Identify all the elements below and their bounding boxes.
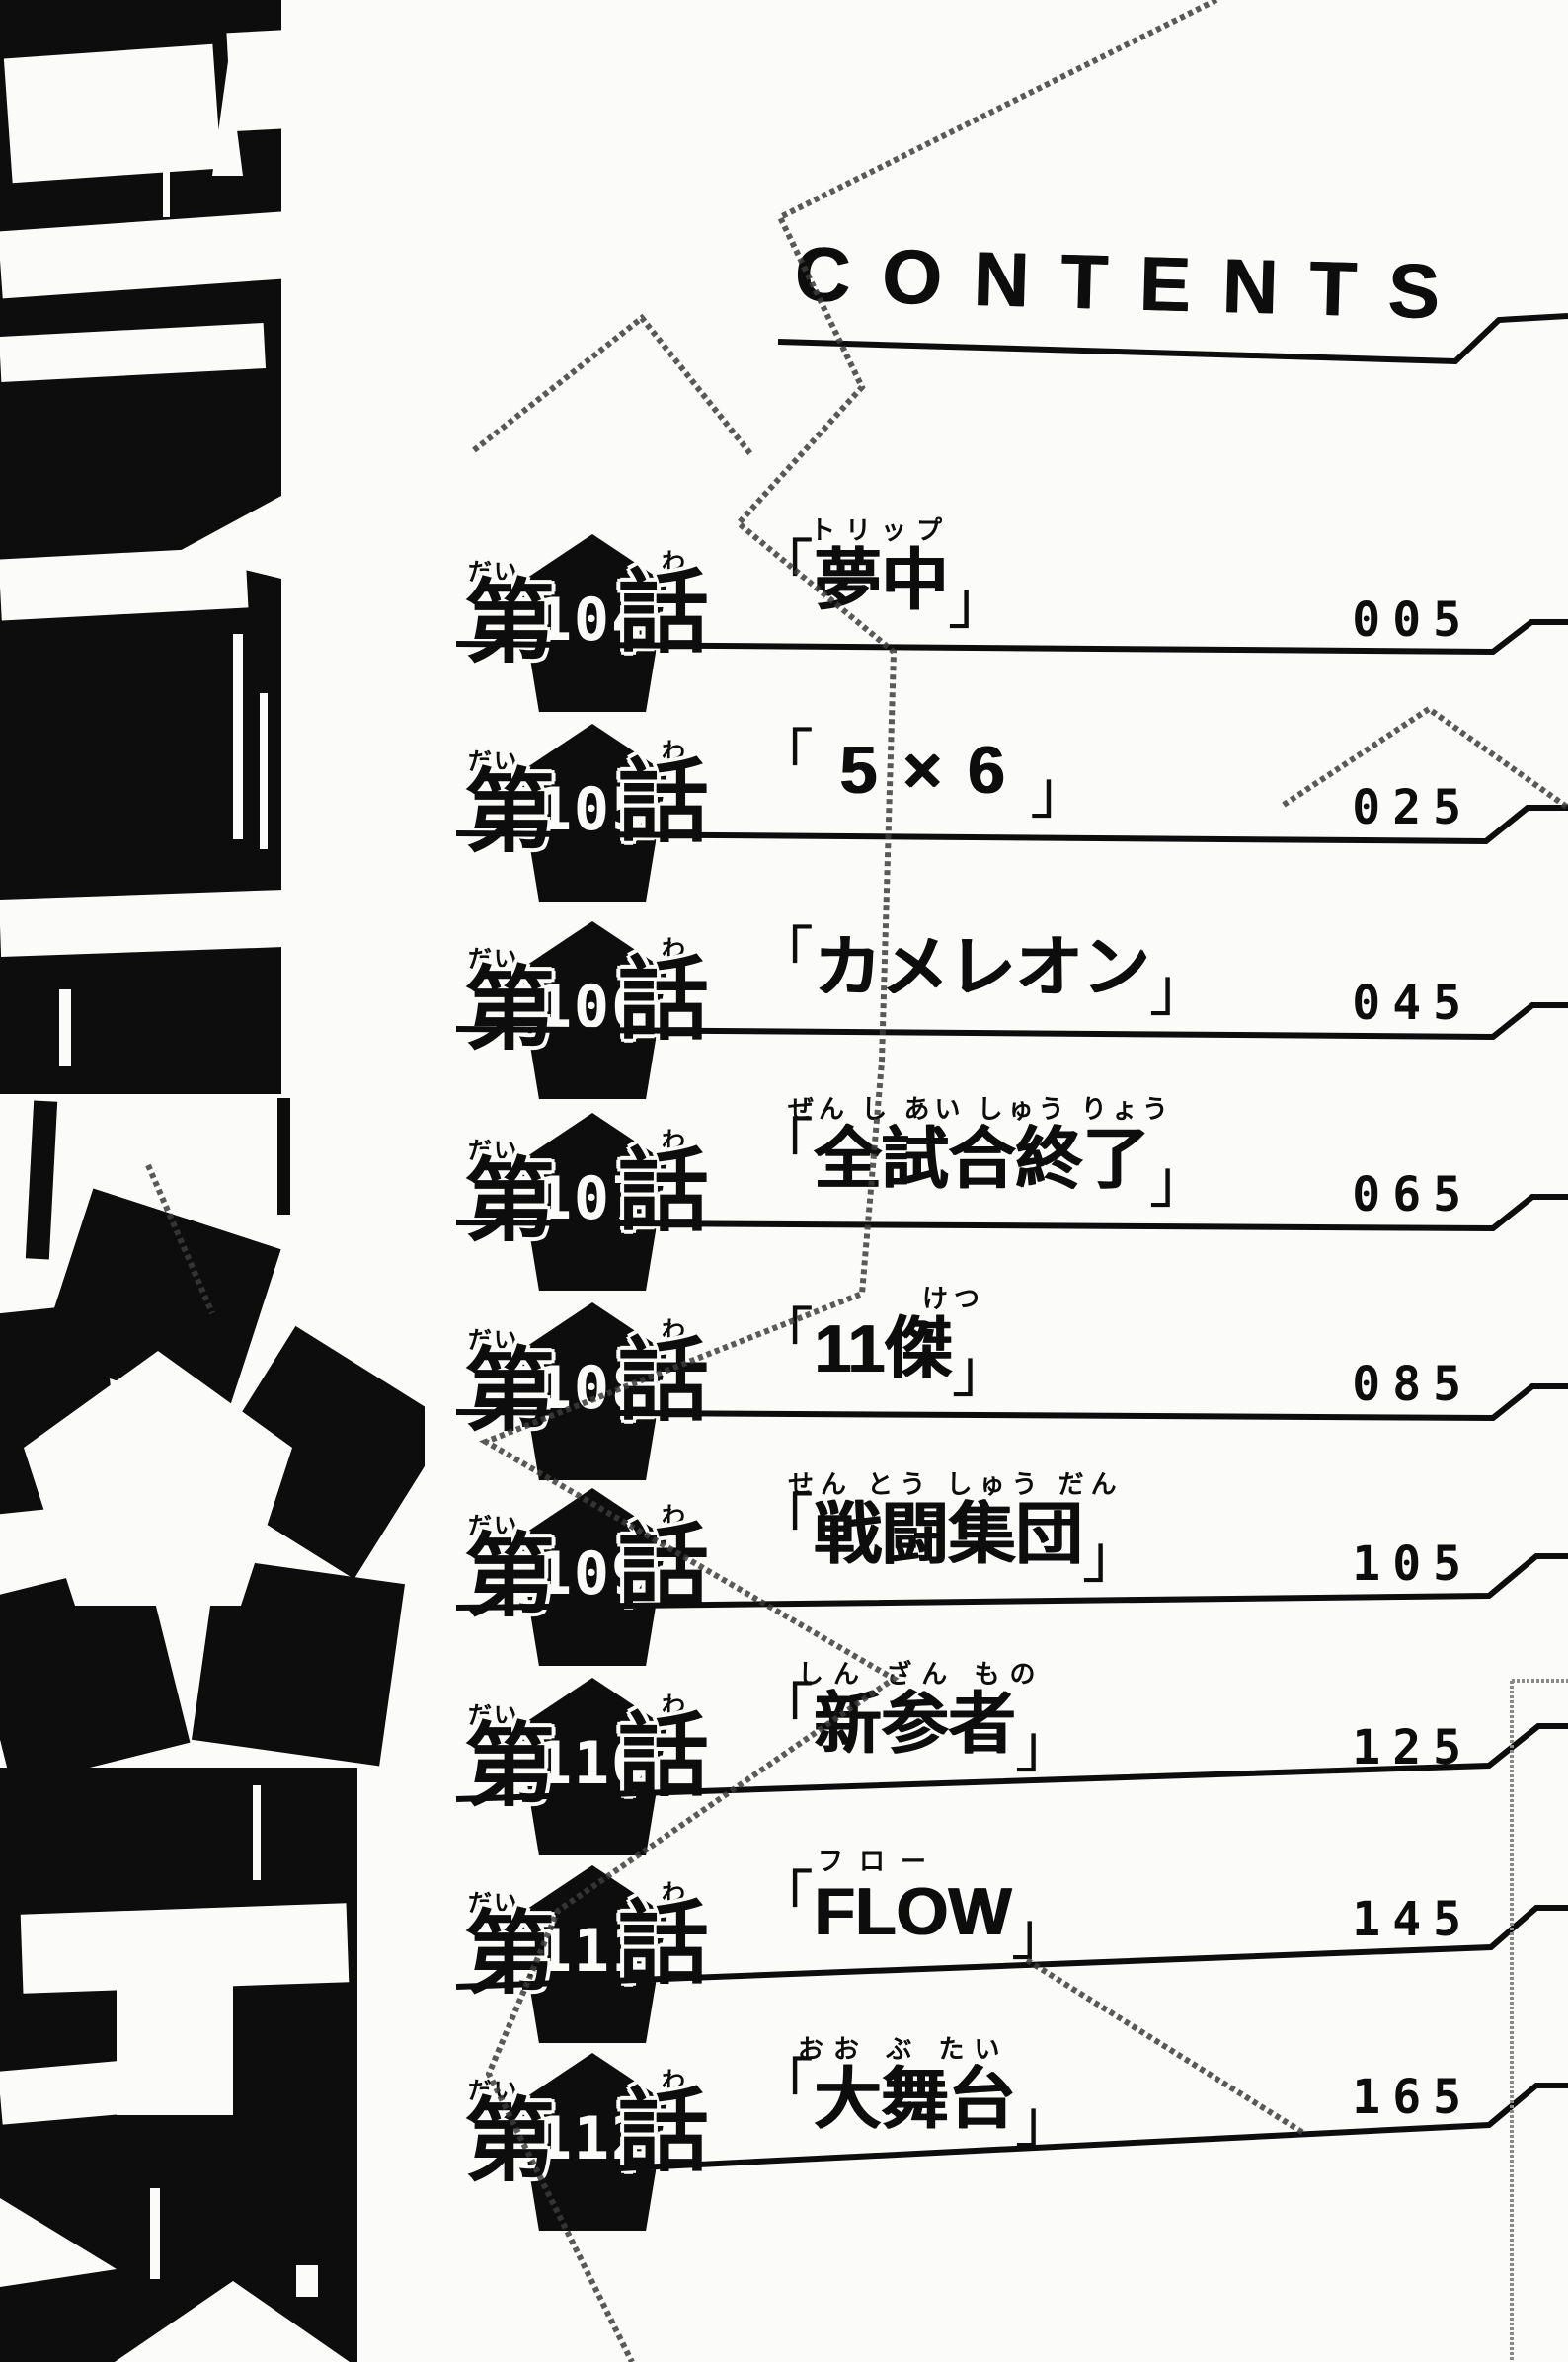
chapter-prefix: 第 <box>464 2096 555 2187</box>
chapter-suffix: 話 <box>618 1146 709 1237</box>
title-reading: しん ざん もの <box>798 1654 1074 1690</box>
close-quote: 」 <box>1030 759 1115 826</box>
chapter-title: 戦闘集団 <box>814 1497 1082 1572</box>
chapter-suffix: 話 <box>618 1711 709 1802</box>
open-quote: 「 <box>754 534 814 600</box>
chapter-title: FLOW <box>814 1874 1011 1949</box>
title-reading <box>802 700 1115 736</box>
chapter-prefix: 第 <box>464 578 555 669</box>
open-quote: 「 <box>754 1678 814 1744</box>
chapter-title: 夢中 <box>814 543 948 618</box>
chapter-suffix: 話 <box>618 1522 709 1613</box>
chapter-suffix: 話 <box>618 2086 709 2177</box>
open-quote: 「 <box>754 1865 814 1931</box>
chapter-prefix: 第 <box>464 1346 555 1437</box>
page-number: 125 <box>1339 1720 1473 1775</box>
title-reading: ぜん し あい しゅう りょう <box>788 1089 1209 1125</box>
close-quote: 」 <box>1082 1524 1141 1590</box>
chapter-prefix: 第 <box>464 1721 555 1812</box>
page-number: 045 <box>1339 976 1473 1031</box>
close-quote: 」 <box>948 570 1007 636</box>
chapter-suffix: 話 <box>618 1899 709 1990</box>
chapter-suffix: 話 <box>618 955 709 1046</box>
close-quote: 」 <box>1015 2088 1074 2155</box>
chapter-prefix: 第 <box>464 965 555 1056</box>
page-number: 145 <box>1339 1892 1473 1947</box>
open-quote: 「 <box>754 1488 814 1554</box>
page-number: 005 <box>1339 592 1473 648</box>
chapter-prefix: 第 <box>464 1909 555 2000</box>
open-quote: 「 <box>754 1113 814 1179</box>
title-reading: フロー <box>818 1842 1070 1877</box>
close-quote: 」 <box>1149 1148 1209 1215</box>
chapter-title: 5×6 <box>839 733 1030 808</box>
page-number: 025 <box>1339 780 1473 835</box>
page-title: CONTENTS <box>793 229 1471 338</box>
open-quote: 「 <box>754 1302 814 1369</box>
close-quote: 」 <box>952 1338 1011 1404</box>
chapter-title: 大舞台 <box>814 2062 1015 2137</box>
title-reading <box>802 898 1209 933</box>
page-number: 065 <box>1339 1167 1473 1222</box>
chapter-title: カメレオン <box>814 930 1149 1005</box>
page-number: 105 <box>1339 1536 1473 1592</box>
open-quote: 「 <box>754 724 839 790</box>
chapter-title: 新参者 <box>814 1687 1015 1762</box>
chapter-suffix: 話 <box>618 568 709 659</box>
chapter-suffix: 話 <box>618 1336 709 1427</box>
open-quote: 「 <box>754 2053 814 2119</box>
chapter-prefix: 第 <box>464 1156 555 1247</box>
chapter-title: 11傑 <box>814 1311 952 1386</box>
title-reading: せん とう しゅう だん <box>788 1464 1141 1500</box>
open-quote: 「 <box>754 921 814 987</box>
title-reading: けつ <box>922 1279 1011 1314</box>
chapter-suffix: 話 <box>618 757 709 848</box>
chapter-title: 全試合終了 <box>814 1122 1149 1197</box>
close-quote: 」 <box>1015 1713 1074 1779</box>
title-reading: トリップ <box>810 511 1007 546</box>
close-quote: 」 <box>1011 1901 1070 1967</box>
corner-frame-line <box>1512 1681 1568 2362</box>
toc-page: CONTENTS だい 第 104 わ 話 トリップ 「夢中」 だい 第 105… <box>0 0 1568 2362</box>
title-reading: おお ぶ たい <box>798 2029 1074 2065</box>
chapter-prefix: 第 <box>464 767 555 858</box>
spine-ink-art <box>0 0 425 2362</box>
close-quote: 」 <box>1149 957 1209 1023</box>
chapter-prefix: 第 <box>464 1532 555 1622</box>
page-number: 165 <box>1339 2070 1473 2125</box>
page-number: 085 <box>1339 1357 1473 1412</box>
